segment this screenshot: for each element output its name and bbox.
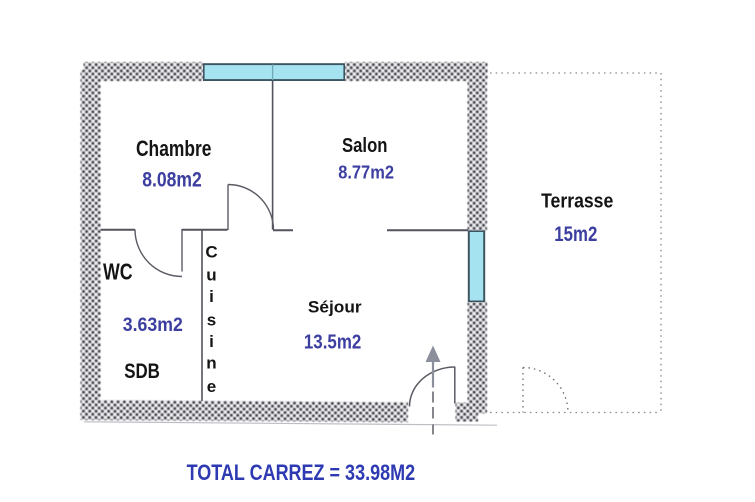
- svg-text:Chambre: Chambre: [136, 136, 211, 161]
- svg-text:Salon: Salon: [342, 134, 388, 157]
- svg-text:s: s: [207, 311, 216, 330]
- svg-text:3.63m2: 3.63m2: [123, 314, 183, 336]
- svg-text:15m2: 15m2: [554, 222, 597, 246]
- svg-text:WC: WC: [103, 259, 133, 285]
- svg-text:Séjour: Séjour: [308, 298, 362, 317]
- svg-text:n: n: [206, 354, 216, 373]
- svg-text:13.5m2: 13.5m2: [304, 332, 361, 354]
- svg-text:Terrasse: Terrasse: [541, 190, 613, 213]
- svg-text:e: e: [207, 377, 216, 396]
- svg-text:C: C: [205, 243, 217, 262]
- svg-text:u: u: [206, 266, 216, 285]
- svg-text:8.08m2: 8.08m2: [142, 168, 202, 191]
- svg-text:i: i: [209, 332, 214, 351]
- svg-text:8.77m2: 8.77m2: [338, 163, 394, 183]
- svg-text:SDB: SDB: [124, 360, 160, 383]
- svg-text:i: i: [209, 287, 214, 306]
- svg-text:TOTAL CARREZ = 33.98M2: TOTAL CARREZ = 33.98M2: [187, 460, 416, 485]
